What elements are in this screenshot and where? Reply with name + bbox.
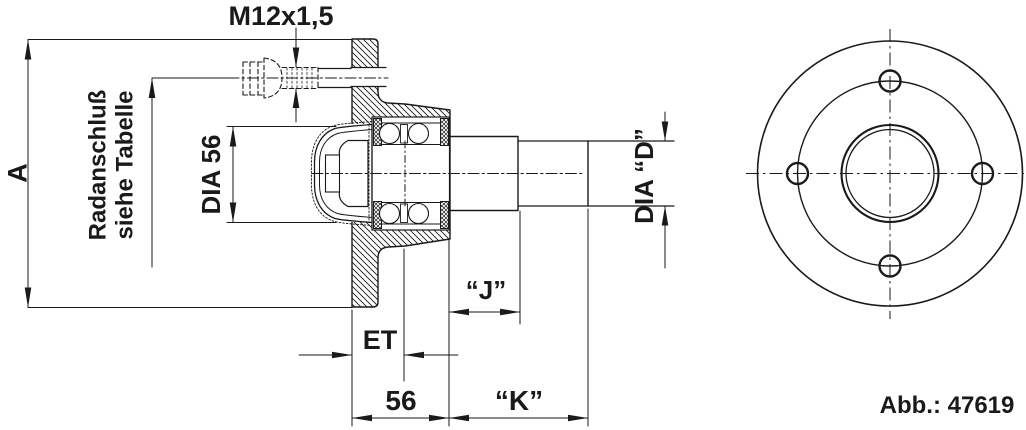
dimension-a-label: A — [2, 163, 32, 183]
dimension-arrow — [449, 309, 469, 316]
dimension-j — [449, 309, 520, 316]
dimension-arrow — [662, 206, 669, 226]
bearing-seal — [441, 202, 449, 229]
dimension-arrow — [500, 309, 520, 316]
dimension-arrow — [25, 40, 32, 60]
dimension-arrow — [293, 48, 300, 68]
stud-hole — [351, 68, 380, 87]
offset-et-label: ET — [363, 325, 398, 355]
dimension-a — [25, 40, 352, 308]
dimension-dia-d — [662, 112, 669, 268]
bearing-ball — [380, 204, 400, 224]
dimension-arrow — [404, 352, 424, 359]
dimension-m12 — [293, 28, 300, 122]
bearing-ball — [409, 124, 429, 144]
section-view: M12x1,5 A Radanschluß siehe Tabelle DIA … — [2, 1, 674, 426]
dimension-arrow — [332, 352, 352, 359]
spindle-diameter-label: DIA “D” — [629, 128, 659, 224]
bearing-cage — [401, 204, 408, 223]
dimension-arrow — [25, 288, 32, 308]
dimension-arrow — [662, 122, 669, 142]
dimension-k-label: “K” — [495, 385, 543, 416]
dimension-j-label: “J” — [466, 275, 506, 305]
cap-diameter-label: DIA 56 — [196, 135, 226, 215]
bearing-ball — [409, 204, 429, 224]
dimension-arrow — [449, 415, 469, 422]
hub-width-label: 56 — [385, 385, 416, 416]
front-view — [746, 29, 1025, 319]
thread-size-label: M12x1,5 — [228, 1, 333, 31]
dimension-arrow — [230, 127, 237, 147]
figure-number-label: Abb.: 47619 — [880, 392, 1015, 419]
dimension-arrow — [149, 78, 156, 98]
dimension-arrow — [230, 203, 237, 223]
wheel-mount-label-line1: Radanschluß — [84, 90, 111, 241]
dimension-arrow — [568, 415, 588, 422]
wheel-mount-label-line2: siehe Tabelle — [111, 91, 138, 240]
bearing-seal — [441, 119, 449, 146]
bearing-ball — [380, 124, 400, 144]
technical-drawing: M12x1,5 A Radanschluß siehe Tabelle DIA … — [0, 0, 1026, 430]
bearing-cage — [401, 125, 408, 144]
dimension-arrow — [293, 88, 300, 108]
wheel-hub-drawing: M12x1,5 A Radanschluß siehe Tabelle DIA … — [0, 0, 1026, 430]
dimension-arrow — [429, 415, 449, 422]
dimension-arrow — [352, 415, 372, 422]
